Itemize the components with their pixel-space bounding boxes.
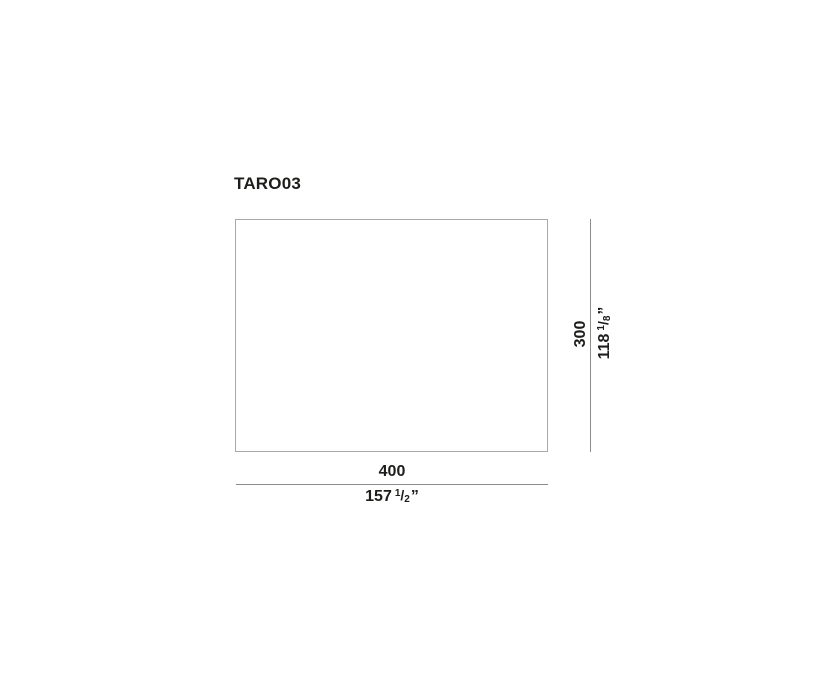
height-fraction-numerator: 1 [596, 325, 607, 331]
width-inches-whole: 157 [365, 488, 392, 505]
width-cm-label: 400 [236, 463, 548, 481]
width-fraction-denominator: 2 [404, 494, 410, 505]
height-inch-mark: ” [596, 307, 613, 315]
height-fraction-slash: / [595, 321, 611, 325]
height-inches-whole: 118 [596, 334, 613, 360]
height-inches-fraction: 1/8 [596, 316, 613, 331]
height-cm-label: 300 [572, 321, 590, 348]
width-dimension-line [236, 484, 548, 485]
width-inches-label: 1571/2” [236, 488, 548, 506]
height-fraction-denominator: 8 [602, 316, 613, 322]
width-inches-fraction: 1/2 [395, 488, 410, 505]
rug-outline-rectangle [235, 219, 548, 452]
product-dimension-sheet: TARO03 300 1181/8” 400 1571/2” [0, 0, 840, 679]
product-code-title: TARO03 [234, 175, 301, 194]
height-inches-label: 1181/8” [596, 307, 614, 360]
width-inch-mark: ” [411, 488, 419, 505]
